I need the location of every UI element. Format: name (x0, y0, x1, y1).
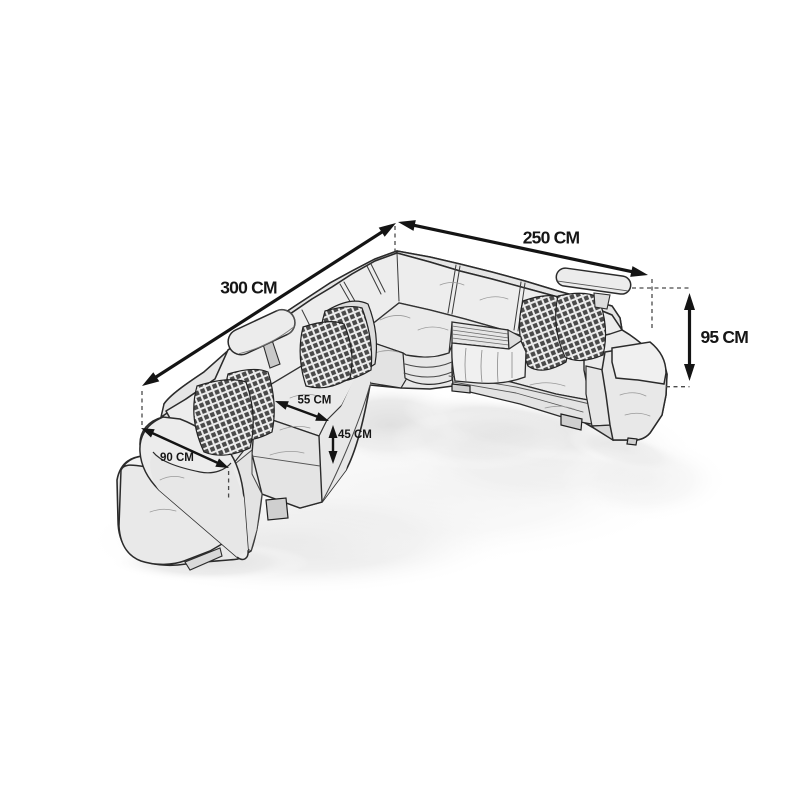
svg-text:300 CM: 300 CM (220, 278, 277, 298)
svg-text:250 CM: 250 CM (523, 228, 580, 248)
svg-text:90 CM: 90 CM (160, 452, 194, 464)
svg-text:95 CM: 95 CM (701, 327, 749, 347)
svg-text:55 CM: 55 CM (297, 395, 331, 407)
svg-text:45 CM: 45 CM (338, 429, 372, 441)
